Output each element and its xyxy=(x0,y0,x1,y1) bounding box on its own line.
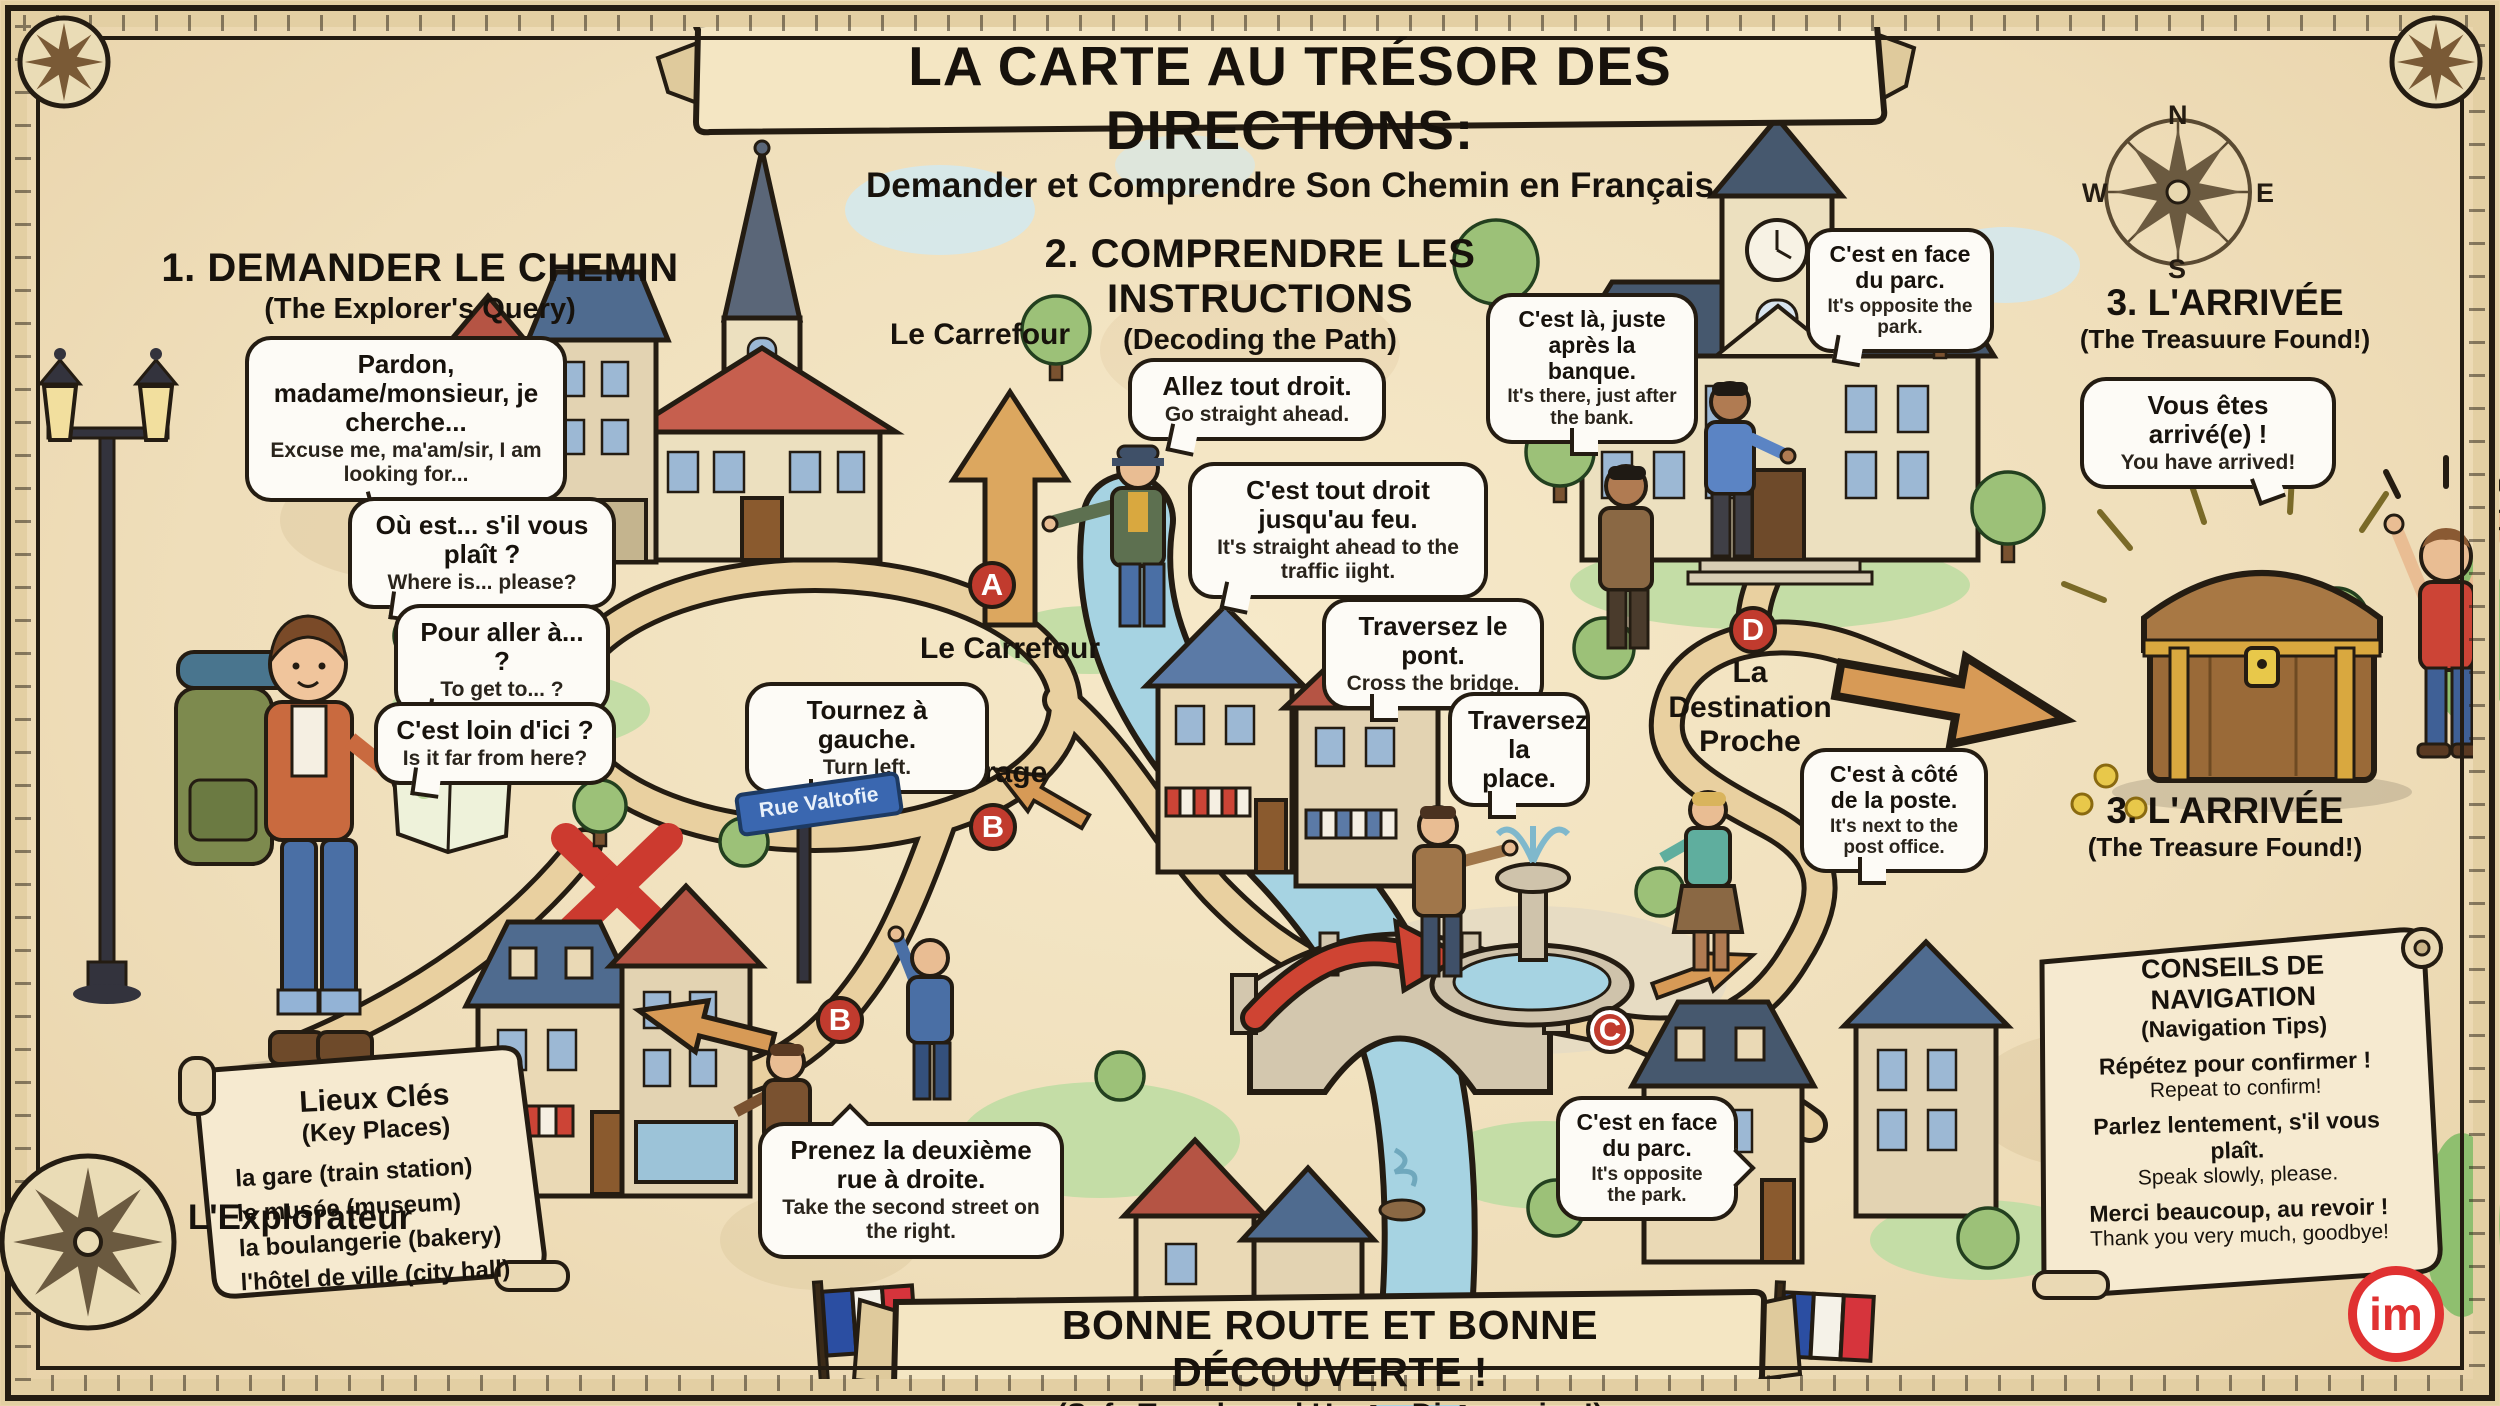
footer-banner: BONNE ROUTE ET BONNE DÉCOUVERTE ! (Safe … xyxy=(930,1302,1730,1406)
man-brown-coat xyxy=(1600,466,1652,648)
label-carrefour: Le Carrefour xyxy=(910,632,1110,666)
treasure-map-poster: LA CARTE AU TRÉSOR DES DIRECTIONS: Deman… xyxy=(0,0,2500,1406)
section-1-heading: 1. DEMANDER LE CHEMIN (The Explorer's Qu… xyxy=(150,246,690,326)
bubble-parc-bas: C'est en face du parc. It's opposite the… xyxy=(1556,1096,1738,1221)
page-title: LA CARTE AU TRÉSOR DES DIRECTIONS: xyxy=(740,34,1840,162)
bubble-allez: Allez tout droit. Go straight ahead. xyxy=(1128,358,1386,441)
key-places-list: Lieux Clés (Key Places) la gare (train s… xyxy=(231,1075,528,1302)
compass-s-label: S xyxy=(2168,254,2186,285)
bubble-cest-loin: C'est loin d'ici ? Is it far from here? xyxy=(374,702,616,785)
section-3-footer-label: 3. L'ARRIVÉE (The Treasure Found!) xyxy=(2055,790,2395,863)
marker-b-2: B xyxy=(816,996,864,1044)
nav-tip: Parlez lentement, s'il vous plaît. Speak… xyxy=(2066,1106,2408,1193)
bubble-tail xyxy=(1488,791,1516,819)
marker-a: A xyxy=(968,561,1016,609)
title-banner: LA CARTE AU TRÉSOR DES DIRECTIONS: Deman… xyxy=(740,34,1840,206)
bubble-prenez: Prenez la deuxième rue à droite. Take th… xyxy=(758,1122,1064,1259)
bubble-pardon: Pardon, madame/monsieur, je cherche... E… xyxy=(245,336,567,502)
compass-n-label: N xyxy=(2168,100,2188,131)
bubble-pour-aller: Pour aller à... ? To get to... ? xyxy=(394,604,610,716)
bubble-arrive: Vous êtes arrivé(e) ! You have arrived! xyxy=(2080,377,2336,489)
bubble-tail xyxy=(1370,694,1398,722)
bubble-tail xyxy=(410,767,442,799)
bubble-tail xyxy=(1832,335,1864,367)
nav-tip: Merci beaucoup, au revoir ! Thank you ve… xyxy=(2069,1193,2410,1253)
bubble-banque: C'est là, juste après la banque. It's th… xyxy=(1486,293,1698,444)
label-carrefour-top: Le Carrefour xyxy=(880,318,1080,352)
bubble-ou-est: Où est... s'il vous plaît ? Where is... … xyxy=(348,497,616,609)
nav-tips-list: CONSEILS DE NAVIGATION (Navigation Tips)… xyxy=(2062,948,2410,1253)
compass-w-label: W xyxy=(2082,178,2107,209)
bubble-poste: C'est à côté de la poste. It's next to t… xyxy=(1800,748,1988,873)
bubble-jusquau-feu: C'est tout droit jusqu'au feu. It's stra… xyxy=(1188,462,1488,599)
compass-e-label: E xyxy=(2256,178,2274,209)
compass-medallion-icon xyxy=(2,1156,174,1328)
marker-c: C xyxy=(1586,1006,1634,1054)
bubble-tail xyxy=(1858,857,1886,885)
marker-b: B xyxy=(969,803,1017,851)
treasure-chest xyxy=(2064,476,2412,818)
section-3-heading: 3. L'ARRIVÉE (The Treasuure Found!) xyxy=(2055,282,2395,355)
label-destination: La Destination Proche xyxy=(1660,656,1840,760)
nav-tip: Répétez pour confirmer ! Repeat to confi… xyxy=(2065,1046,2406,1106)
im-logo: im xyxy=(2348,1266,2444,1362)
bubble-tail xyxy=(1219,581,1252,614)
bubble-parc-haut: C'est en face du parc. It's opposite the… xyxy=(1806,228,1994,353)
lamp-post xyxy=(40,348,176,1004)
marker-d: D xyxy=(1729,606,1777,654)
bubble-place: Traversez la place. xyxy=(1448,692,1590,807)
bubble-tail xyxy=(1570,428,1598,456)
bubble-tail xyxy=(1165,424,1198,457)
page-subtitle: Demander et Comprendre Son Chemin en Fra… xyxy=(740,166,1840,206)
waving-man-blue xyxy=(889,927,952,1099)
compass-rose-icon xyxy=(2106,120,2250,264)
